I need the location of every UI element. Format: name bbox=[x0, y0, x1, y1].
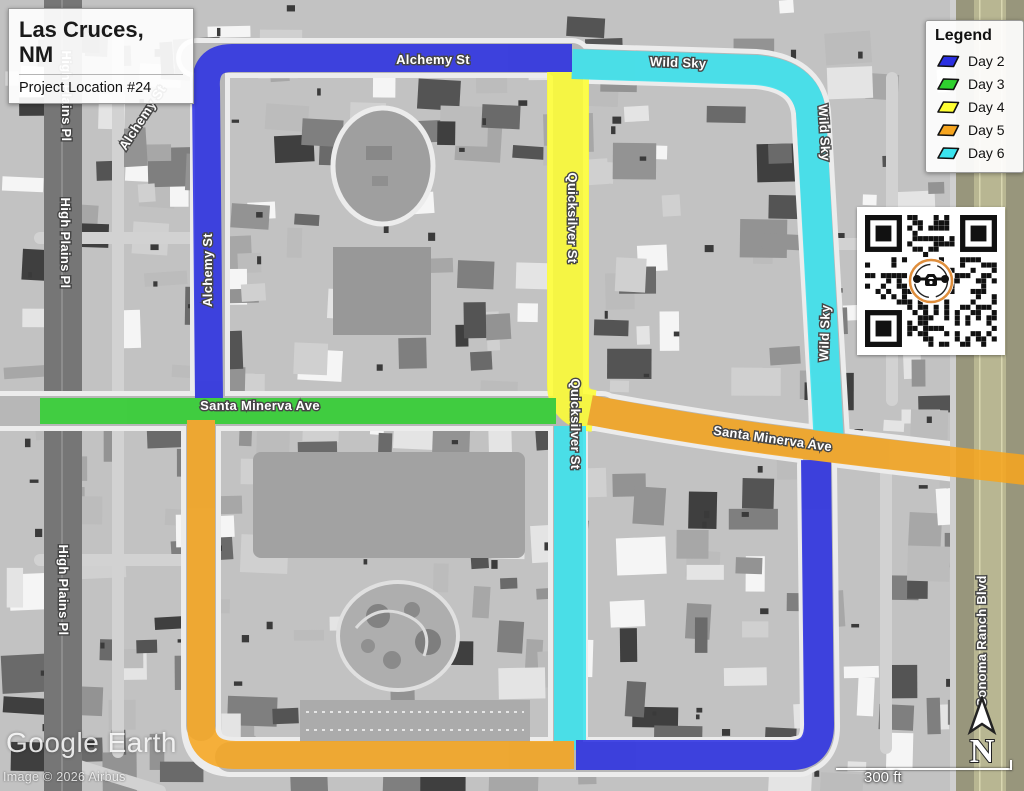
day-color-swatch bbox=[935, 76, 961, 92]
map-screenshot: Alchemy StAlchemy StAlchemy StWild SkyWi… bbox=[0, 0, 1024, 791]
city-name-line1: Las Cruces, bbox=[19, 17, 183, 42]
day-color-swatch bbox=[935, 53, 961, 69]
day-color-swatch bbox=[935, 122, 961, 138]
scale-tick bbox=[1010, 760, 1012, 770]
street-label: Alchemy St bbox=[200, 233, 215, 307]
north-indicator: N bbox=[956, 696, 1012, 768]
title-box: Las Cruces, NM Project Location #24 bbox=[8, 8, 194, 104]
google-earth-watermark: Google Earth bbox=[6, 727, 177, 759]
legend-item: Day 2 bbox=[935, 49, 1023, 72]
legend-item-label: Day 6 bbox=[968, 145, 1005, 161]
legend-item-label: Day 2 bbox=[968, 53, 1005, 69]
street-label: Quicksilver St bbox=[565, 173, 580, 264]
street-label: Wild Sky bbox=[816, 104, 834, 162]
street-label: High Plains Pl bbox=[58, 198, 73, 289]
street-label: Wild Sky bbox=[816, 304, 833, 361]
street-label: Santa Minerva Ave bbox=[200, 398, 320, 413]
legend-rows: Day 2Day 3Day 4Day 5Day 6 bbox=[935, 49, 1023, 164]
legend-item: Day 6 bbox=[935, 141, 1023, 164]
north-arrow-icon bbox=[970, 698, 994, 732]
legend-title: Legend bbox=[935, 27, 1023, 45]
qr-code bbox=[857, 207, 1005, 355]
street-label: Wild Sky bbox=[650, 54, 707, 71]
day-color-swatch bbox=[935, 145, 961, 161]
legend-item: Day 4 bbox=[935, 95, 1023, 118]
legend-item-label: Day 3 bbox=[968, 76, 1005, 92]
title-divider bbox=[19, 74, 183, 75]
legend-item-label: Day 4 bbox=[968, 99, 1005, 115]
street-label: Sonoma Ranch Blvd bbox=[974, 575, 989, 707]
legend-box: Legend Day 2Day 3Day 4Day 5Day 6 bbox=[925, 20, 1024, 173]
legend-item-label: Day 5 bbox=[968, 122, 1005, 138]
day-color-swatch bbox=[935, 99, 961, 115]
street-label: High Plains Pl bbox=[56, 545, 71, 636]
legend-item: Day 3 bbox=[935, 72, 1023, 95]
scale-bar bbox=[836, 768, 1012, 778]
scale-line bbox=[836, 768, 1012, 770]
scale-label: 300 ft bbox=[864, 769, 902, 786]
copyright-text: Image © 2026 Airbus bbox=[3, 770, 126, 784]
street-label: Alchemy St bbox=[396, 52, 470, 67]
street-label: Quicksilver St bbox=[568, 379, 583, 470]
city-name-line2: NM bbox=[19, 42, 183, 67]
drone-logo-icon bbox=[908, 258, 954, 304]
project-location-label: Project Location #24 bbox=[19, 80, 183, 96]
map-canvas: Alchemy StAlchemy StAlchemy StWild SkyWi… bbox=[0, 0, 1024, 791]
north-label: N bbox=[970, 733, 995, 768]
legend-item: Day 5 bbox=[935, 118, 1023, 141]
